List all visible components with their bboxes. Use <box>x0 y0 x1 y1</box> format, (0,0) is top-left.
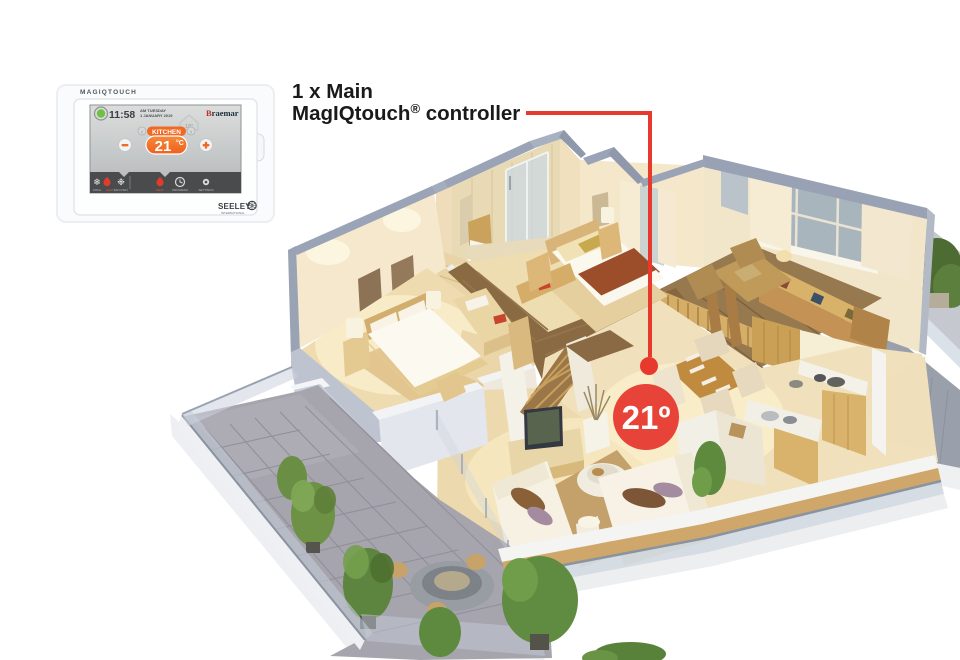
svg-text:❉: ❉ <box>117 177 125 187</box>
svg-text:21º: 21º <box>622 399 671 436</box>
svg-text:SEELEY: SEELEY <box>218 202 251 211</box>
svg-text:1 x Main: 1 x Main <box>292 80 373 103</box>
svg-text:Braemar: Braemar <box>206 108 239 118</box>
svg-text:MAGIQTOUCH: MAGIQTOUCH <box>80 89 137 96</box>
svg-text:SETTINGS: SETTINGS <box>198 188 213 192</box>
svg-text:❄: ❄ <box>93 177 101 187</box>
svg-text:COOL: COOL <box>93 188 102 192</box>
svg-text:°C: °C <box>176 139 184 147</box>
svg-text:HEAT: HEAT <box>156 188 164 192</box>
svg-text:KITCHEN: KITCHEN <box>152 129 181 136</box>
svg-text:INTERNATIONAL: INTERNATIONAL <box>221 211 245 215</box>
svg-text:FAN ONLY: FAN ONLY <box>114 188 129 192</box>
svg-text:21: 21 <box>155 138 172 155</box>
svg-text:MagIQtouch® controller: MagIQtouch® controller <box>292 101 520 125</box>
svg-text:11:58: 11:58 <box>109 109 135 121</box>
svg-text:1 JANUARY 2019: 1 JANUARY 2019 <box>140 113 173 118</box>
svg-text:PROGRAM: PROGRAM <box>172 188 188 192</box>
